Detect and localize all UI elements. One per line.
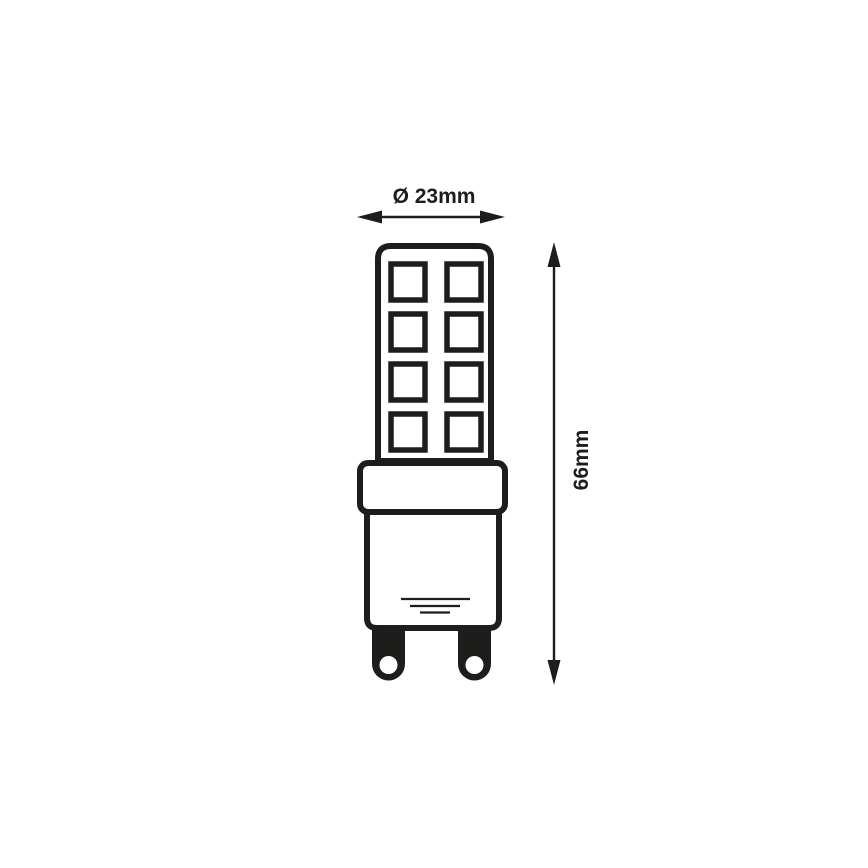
height-arrow-head-bottom — [548, 660, 561, 685]
width-arrow-head-left — [357, 211, 382, 224]
height-dimension-arrow — [548, 242, 561, 685]
pin-right-hole — [466, 656, 484, 674]
bulb-collar — [360, 463, 505, 512]
width-arrow-head-right — [480, 211, 505, 224]
diagram-canvas: Ø 23mm 66mm — [0, 0, 868, 868]
led-chip — [447, 264, 481, 300]
width-dimension-arrow — [357, 211, 505, 224]
pin-left-hole — [380, 656, 398, 674]
led-chip — [447, 414, 481, 450]
bulb-base — [367, 512, 499, 628]
led-chip — [391, 414, 425, 450]
bulb-dimension-diagram: Ø 23mm 66mm — [0, 0, 868, 868]
height-dimension-label: 66mm — [570, 430, 593, 491]
led-chip — [447, 314, 481, 350]
width-dimension-label: Ø 23mm — [393, 185, 476, 208]
height-arrow-head-top — [548, 242, 561, 267]
led-chip — [447, 364, 481, 400]
led-chip — [391, 314, 425, 350]
led-chip — [391, 264, 425, 300]
led-chip — [391, 364, 425, 400]
